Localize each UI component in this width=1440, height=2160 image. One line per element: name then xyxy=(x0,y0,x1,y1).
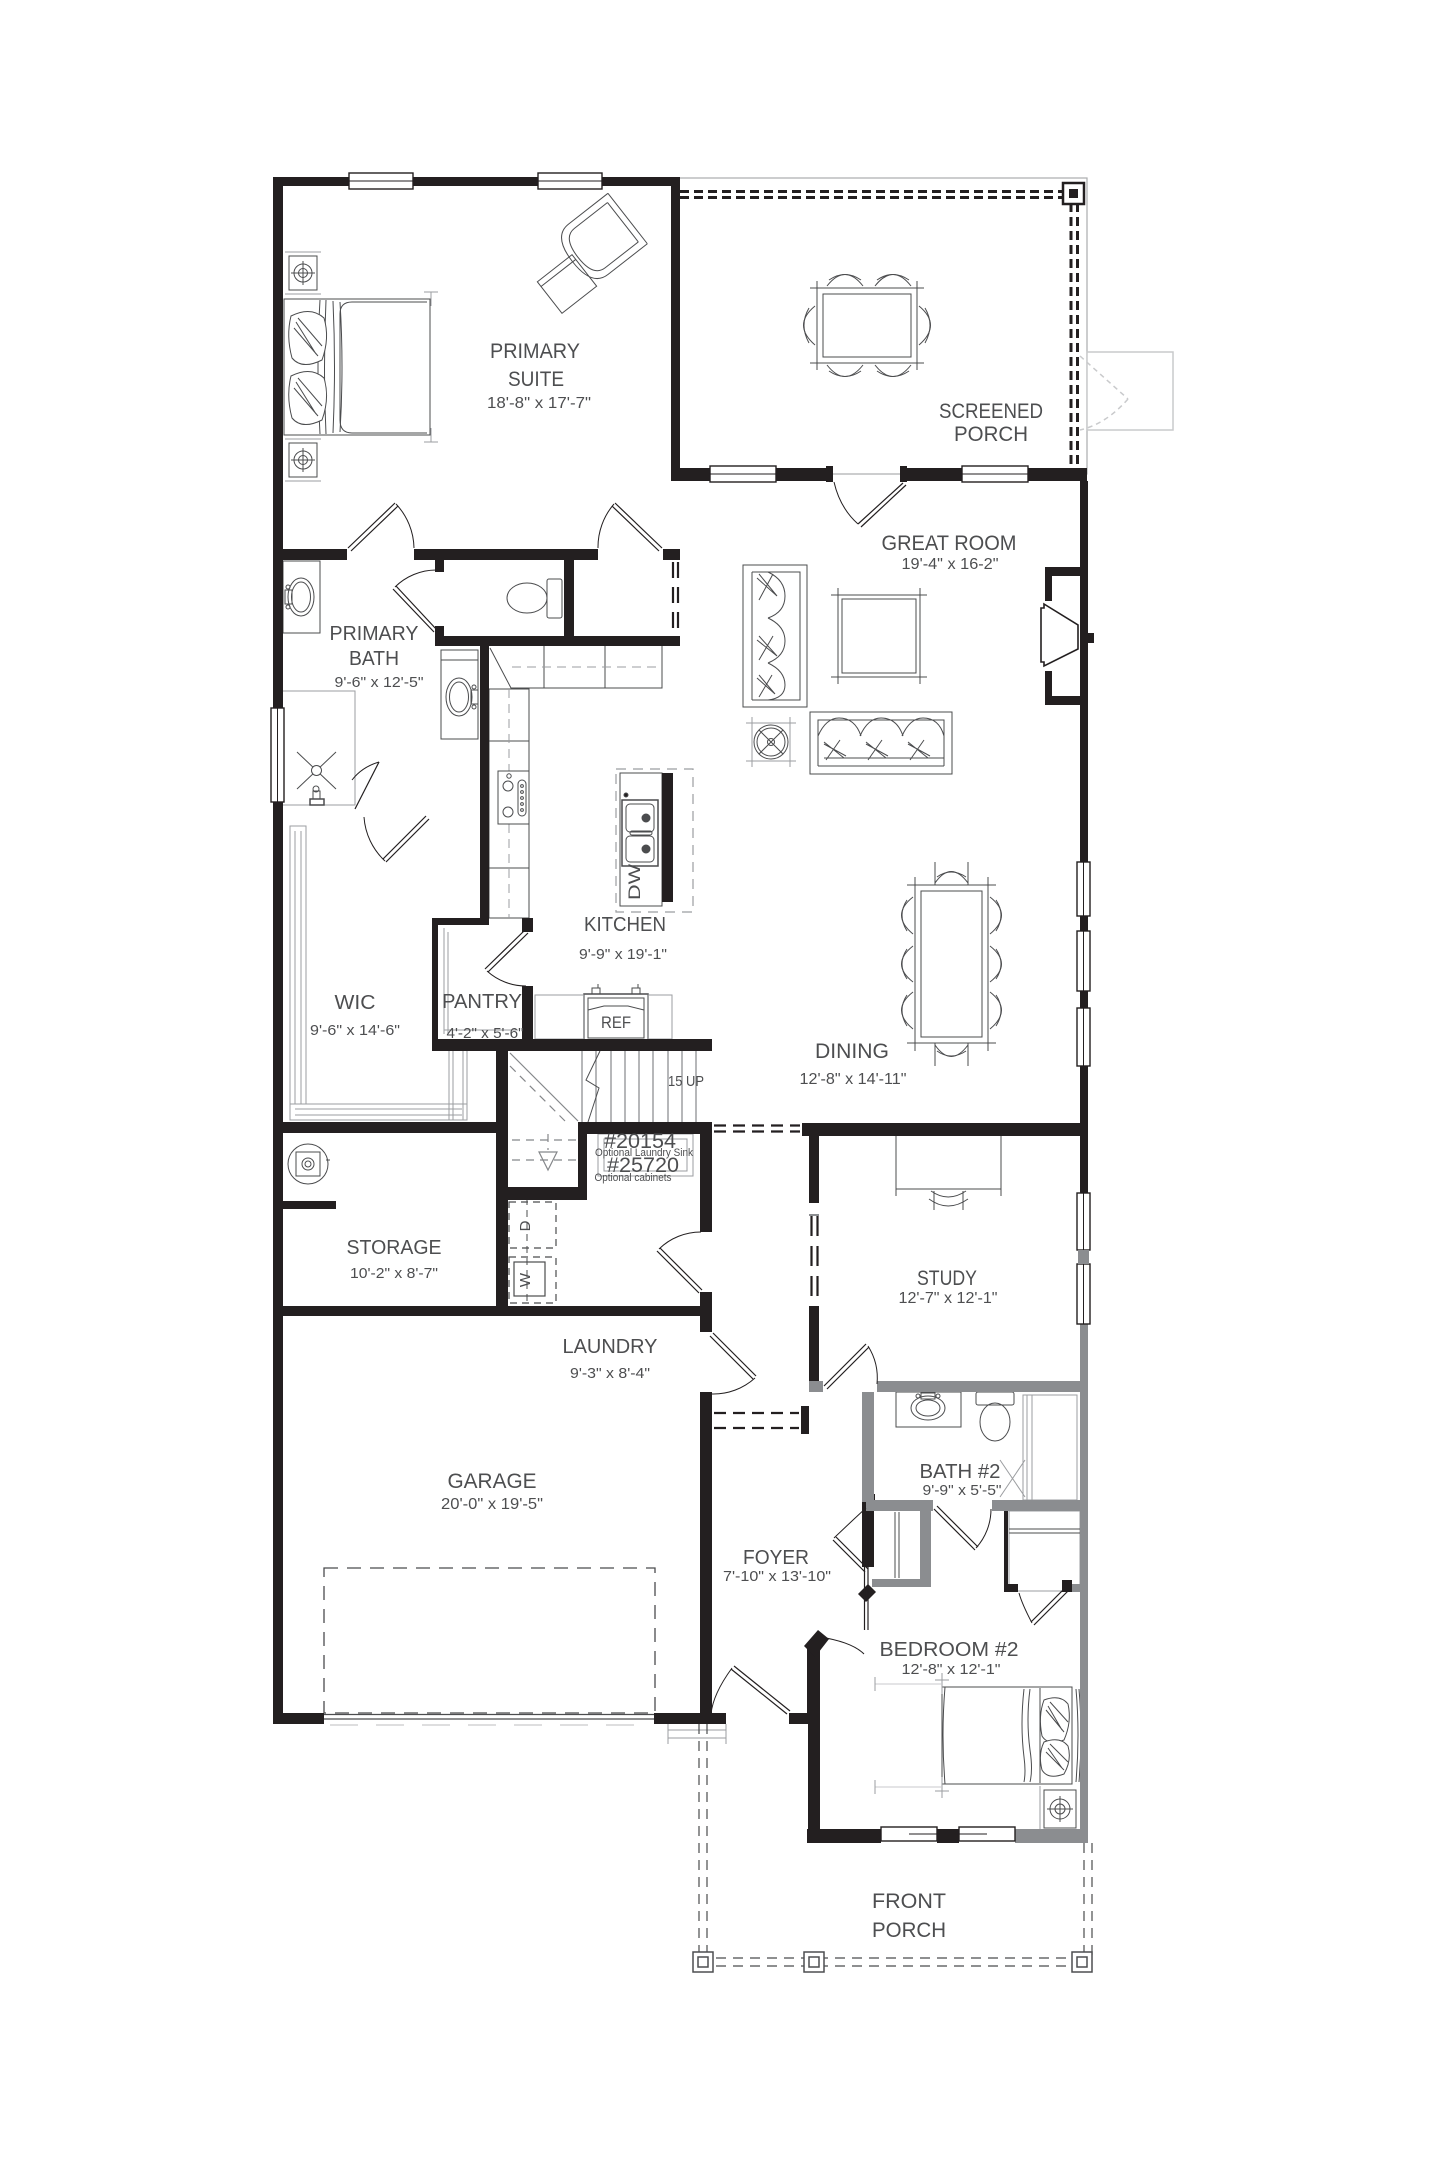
svg-text:BATH: BATH xyxy=(349,648,399,670)
svg-text:12'-8" x 14'-11": 12'-8" x 14'-11" xyxy=(800,1071,907,1088)
svg-text:LAUNDRY: LAUNDRY xyxy=(563,1336,658,1358)
svg-text:10'-2" x 8'-7": 10'-2" x 8'-7" xyxy=(350,1265,438,1282)
svg-text:PRIMARY: PRIMARY xyxy=(330,623,419,645)
svg-text:BATH #2: BATH #2 xyxy=(920,1461,1001,1483)
svg-text:9'-9" x 5'-5": 9'-9" x 5'-5" xyxy=(923,1482,1002,1499)
svg-text:12'-8" x 12'-1": 12'-8" x 12'-1" xyxy=(902,1661,1001,1678)
svg-text:SUITE: SUITE xyxy=(508,368,564,391)
svg-text:GREAT ROOM: GREAT ROOM xyxy=(882,532,1017,555)
svg-text:DW: DW xyxy=(625,864,644,900)
svg-text:PORCH: PORCH xyxy=(954,423,1028,446)
svg-text:WIC: WIC xyxy=(335,992,376,1014)
svg-text:BEDROOM #2: BEDROOM #2 xyxy=(880,1639,1019,1661)
svg-text:19'-4" x 16-2": 19'-4" x 16-2" xyxy=(902,556,999,573)
svg-text:STUDY: STUDY xyxy=(917,1267,977,1290)
svg-text:W: W xyxy=(517,1272,534,1287)
svg-text:KITCHEN: KITCHEN xyxy=(584,914,666,936)
svg-text:PORCH: PORCH xyxy=(872,1919,946,1942)
svg-text:FRONT: FRONT xyxy=(872,1890,946,1913)
svg-text:Optional cabinets: Optional cabinets xyxy=(595,1172,672,1184)
svg-text:15 UP: 15 UP xyxy=(668,1073,704,1090)
svg-text:9'-3" x 8'-4": 9'-3" x 8'-4" xyxy=(570,1365,650,1382)
svg-text:4'-2" x 5'-6": 4'-2" x 5'-6" xyxy=(447,1025,524,1042)
svg-text:REF: REF xyxy=(601,1013,631,1032)
svg-text:DINING: DINING xyxy=(815,1040,889,1063)
svg-text:7'-10" x 13'-10": 7'-10" x 13'-10" xyxy=(723,1568,831,1585)
svg-text:9'-9" x 19'-1": 9'-9" x 19'-1" xyxy=(579,946,667,963)
svg-text:PRIMARY: PRIMARY xyxy=(490,340,580,363)
svg-text:12'-7" x 12'-1": 12'-7" x 12'-1" xyxy=(899,1290,998,1307)
svg-text:18'-8" x 17'-7": 18'-8" x 17'-7" xyxy=(487,395,591,412)
svg-text:PANTRY: PANTRY xyxy=(442,991,522,1013)
svg-text:FOYER: FOYER xyxy=(743,1547,809,1569)
svg-text:D: D xyxy=(517,1220,534,1231)
svg-text:9'-6" x 14'-6": 9'-6" x 14'-6" xyxy=(310,1022,400,1039)
svg-text:GARAGE: GARAGE xyxy=(448,1470,537,1493)
svg-text:20'-0" x 19'-5": 20'-0" x 19'-5" xyxy=(441,1496,543,1513)
svg-text:SCREENED: SCREENED xyxy=(939,400,1043,423)
svg-text:STORAGE: STORAGE xyxy=(347,1237,442,1259)
svg-text:9'-6" x 12'-5": 9'-6" x 12'-5" xyxy=(335,674,424,691)
